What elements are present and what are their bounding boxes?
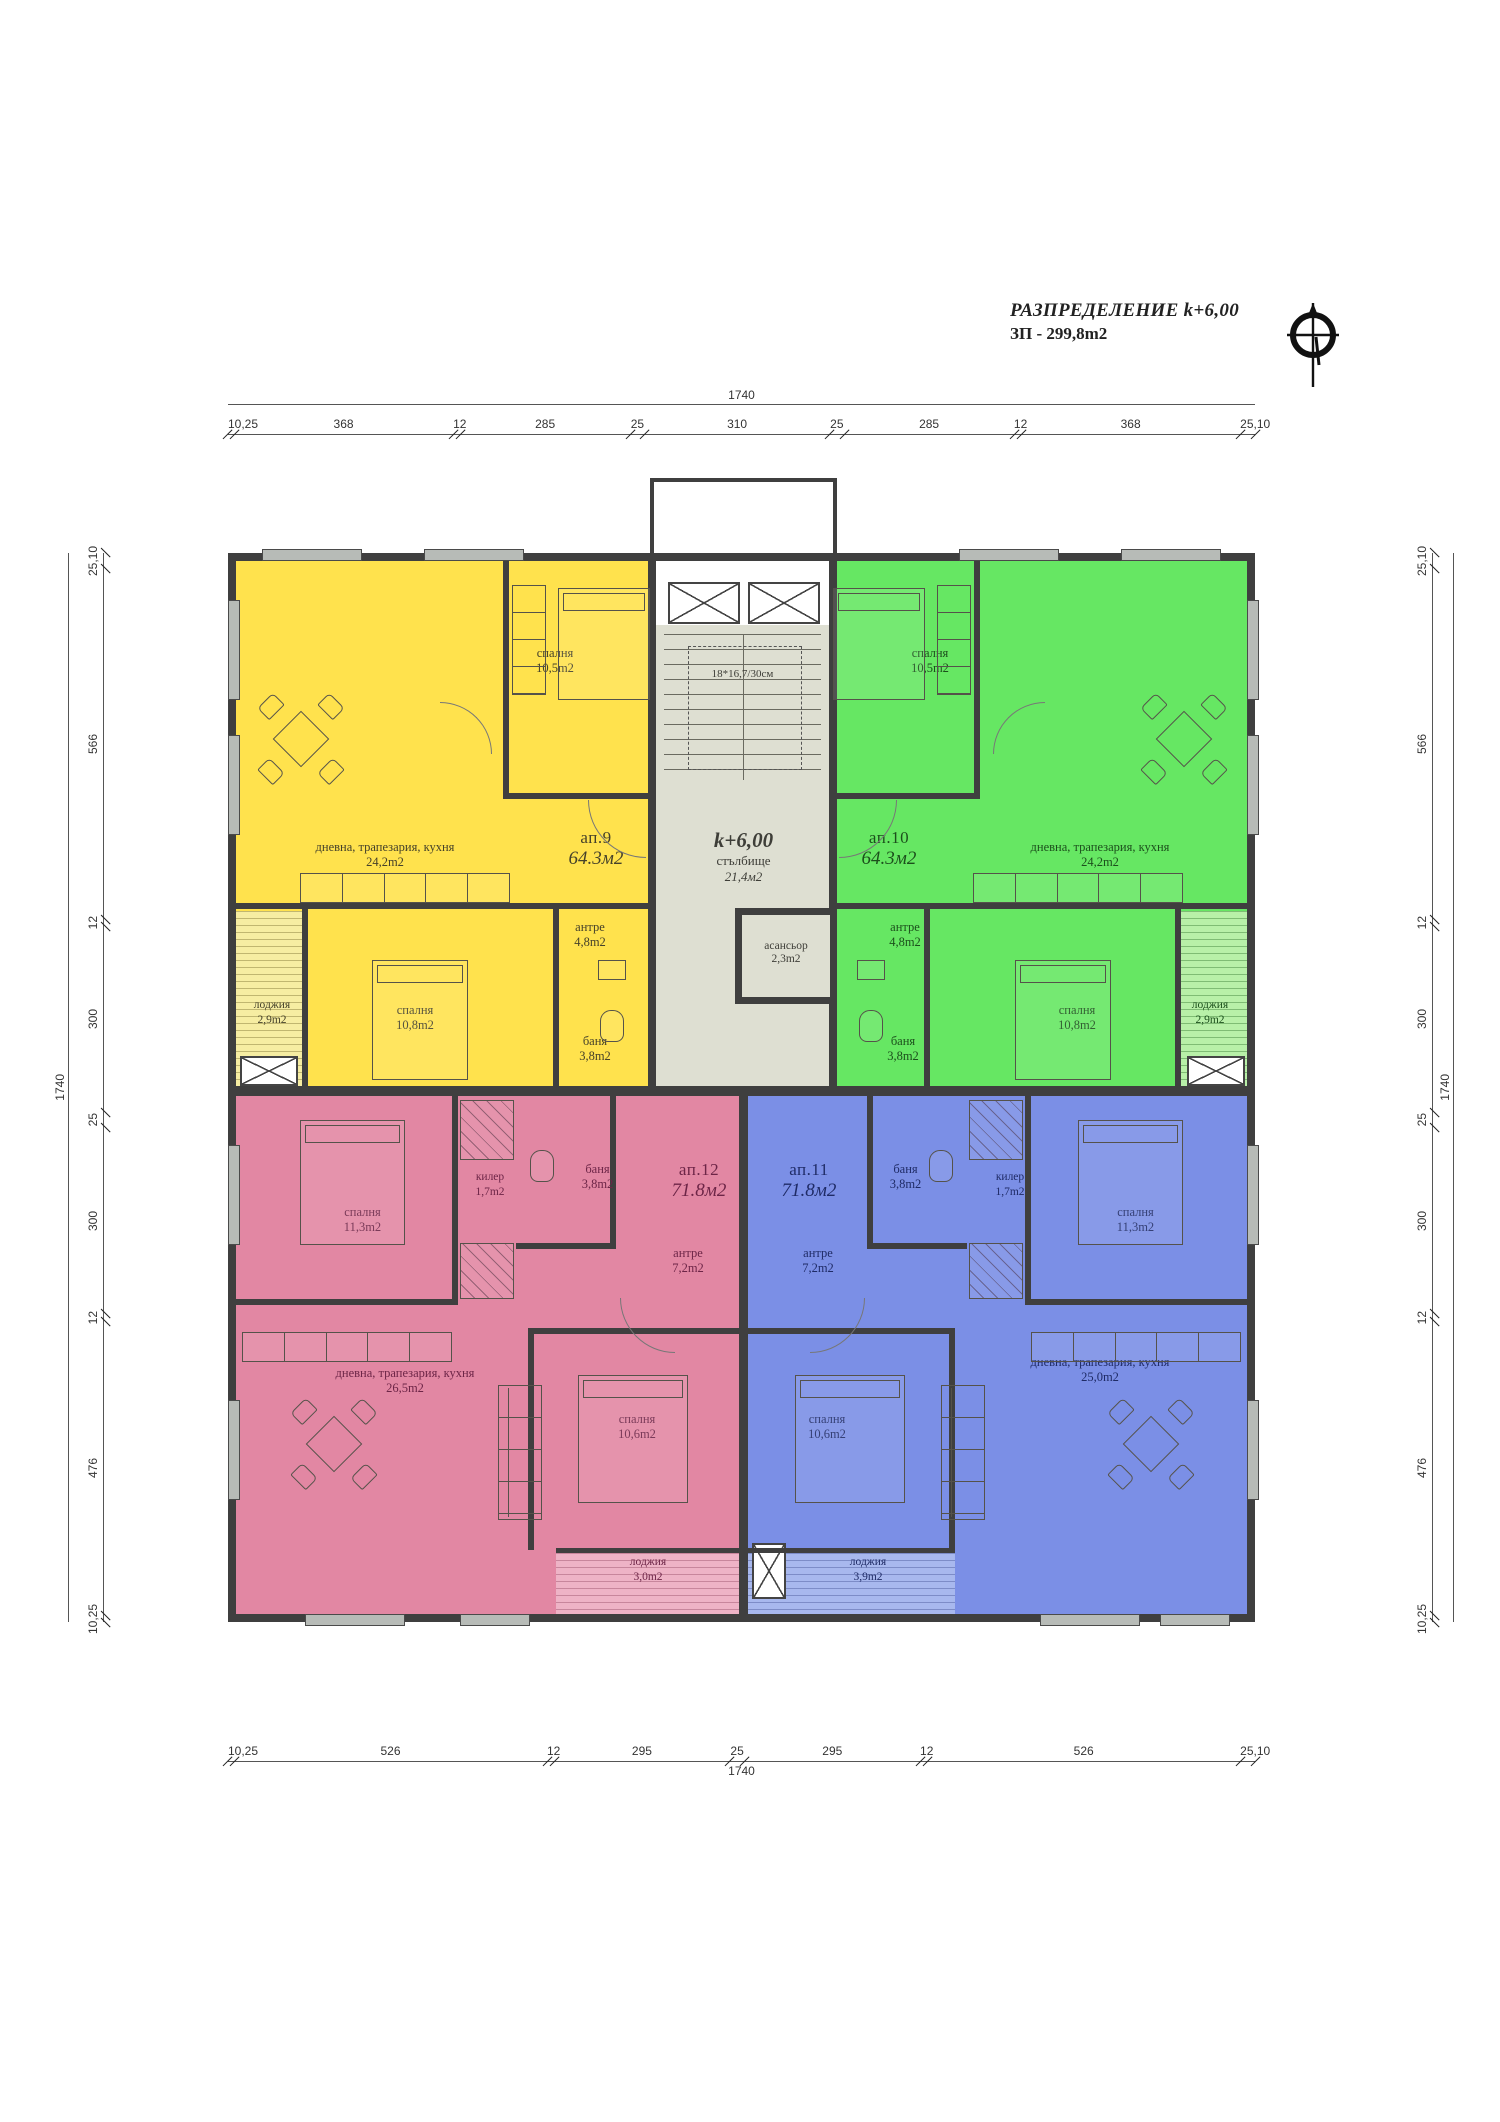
dimension-line-top: 1740 10,25 368 12 285 25 310 25 285 12 3…: [228, 388, 1255, 435]
closet-shelves: [969, 1100, 1023, 1160]
dim-segment: 566: [86, 569, 103, 920]
sofa: [498, 1385, 542, 1520]
window: [460, 1614, 530, 1626]
room-label: лоджия3,9m2: [818, 1555, 918, 1585]
wall: [503, 793, 654, 799]
room-label: баня3,8m2: [550, 1034, 640, 1064]
wall: [503, 561, 509, 799]
bed: [578, 1375, 688, 1503]
dim-segment: 526: [234, 1744, 547, 1761]
elevator-label: асансьор2,3m2: [735, 940, 837, 966]
window: [1040, 1614, 1140, 1626]
dim-segment: 25: [829, 417, 844, 434]
kitchen-counter: [300, 873, 510, 903]
sofa: [941, 1385, 985, 1520]
wall: [1025, 1096, 1031, 1305]
kitchen-counter: [973, 873, 1183, 903]
kitchen-counter: [242, 1332, 452, 1362]
window: [1121, 549, 1221, 561]
window: [1247, 735, 1259, 835]
dim-segment: 368: [1021, 417, 1240, 434]
apartment-12-label: ап.1271.8м2: [638, 1160, 760, 1202]
wall: [974, 561, 980, 799]
room-label: килер1,7m2: [965, 1170, 1055, 1200]
window: [305, 1614, 405, 1626]
closet-shelves: [460, 1243, 514, 1299]
bed: [372, 960, 468, 1080]
dim-segment: 300: [1415, 1128, 1432, 1314]
window: [424, 549, 524, 561]
dim-segment: 12: [1415, 1314, 1432, 1321]
wall: [1025, 1299, 1247, 1305]
room-label: антре4,8m2: [855, 920, 955, 950]
dim-segment: 476: [86, 1321, 103, 1616]
dim-segment: 300: [86, 926, 103, 1112]
dim-segment: 12: [1415, 919, 1432, 926]
dim-segment: 12: [86, 1314, 103, 1321]
dim-total: 1740: [728, 1764, 755, 1778]
dim-segment: 566: [1415, 569, 1432, 920]
dim-segment: 526: [927, 1744, 1240, 1761]
dim-total: 1740: [1438, 1074, 1452, 1101]
dim-segment: 310: [645, 417, 830, 434]
dim-segment: 10,25: [1415, 1616, 1432, 1622]
window: [1247, 600, 1259, 700]
bed: [300, 1120, 405, 1245]
dim-total: 1740: [728, 388, 755, 402]
bed: [833, 588, 925, 700]
room-label: лоджия2,9m2: [1170, 998, 1250, 1028]
bed: [1015, 960, 1111, 1080]
dim-segment: 300: [86, 1128, 103, 1314]
dim-segment: 25: [630, 417, 645, 434]
dim-segment: 285: [844, 417, 1014, 434]
closet-shelves: [460, 1100, 514, 1160]
dim-segment: 12: [1014, 417, 1021, 434]
north-arrow-icon: [1275, 295, 1350, 390]
sink: [598, 960, 626, 980]
room-label: дневна, трапезария, кухня24,2m2: [270, 840, 500, 870]
wall: [236, 903, 654, 909]
wall: [452, 1096, 458, 1305]
vent-shaft-icon: [668, 582, 740, 624]
dimension-line-right: 25,10 566 12 300 25 300 12 476 10,25 174…: [1398, 553, 1454, 1622]
toilet: [600, 1010, 624, 1042]
dimension-line-bottom: 10,25 526 12 295 25 295 12 526 25,10 174…: [228, 1744, 1255, 1780]
sink: [857, 960, 885, 980]
vent-shaft-icon: [1187, 1056, 1245, 1086]
wall: [829, 903, 1247, 909]
dim-segment: 295: [554, 1744, 730, 1761]
room-label: дневна, трапезария, кухня26,5m2: [290, 1366, 520, 1396]
dim-segment: 12: [453, 417, 460, 434]
window: [228, 1400, 240, 1500]
dim-segment: 12: [547, 1744, 554, 1761]
window: [1247, 1400, 1259, 1500]
dining-table: [262, 700, 338, 776]
window: [1247, 1145, 1259, 1245]
toilet: [929, 1150, 953, 1182]
core-label: k+6,00 стълбище 21,4м2: [664, 828, 823, 885]
wall: [829, 793, 980, 799]
dim-segment: 25: [1415, 1112, 1432, 1128]
bed: [558, 588, 650, 700]
stair-shaft-protrusion: [650, 478, 837, 564]
kitchen-counter: [1031, 1332, 1241, 1362]
window: [262, 549, 362, 561]
room-label: баня3,8m2: [550, 1162, 645, 1192]
dim-segment: 25,10: [1240, 1744, 1255, 1761]
toilet: [859, 1010, 883, 1042]
dim-segment: 295: [745, 1744, 921, 1761]
bed: [1078, 1120, 1183, 1245]
window: [228, 1145, 240, 1245]
stair-opening-dashed: [688, 646, 802, 770]
dim-segment: 10,25: [86, 1616, 103, 1622]
dining-table: [1112, 1405, 1188, 1481]
wall: [236, 1299, 458, 1305]
wall: [236, 1086, 1247, 1096]
dim-segment: 300: [1415, 926, 1432, 1112]
vent-shaft-icon: [748, 582, 820, 624]
dim-segment: 25: [730, 1744, 745, 1761]
floor-plan-sheet: РАЗПРЕДЕЛЕНИЕ k+6,00 ЗП - 299,8m2 1740 1…: [0, 0, 1500, 2122]
room-label: антре4,8m2: [540, 920, 640, 950]
wardrobe: [937, 585, 971, 695]
room-label: антре7,2m2: [638, 1246, 738, 1276]
wall: [556, 1548, 739, 1553]
bed: [795, 1375, 905, 1503]
wardrobe: [512, 585, 546, 695]
dim-segment: 285: [460, 417, 630, 434]
room-label: антре7,2m2: [768, 1246, 868, 1276]
dimension-line-left: 1740 25,10 566 12 300 25 300 12 476 10,2…: [48, 553, 104, 1622]
toilet: [530, 1150, 554, 1182]
window: [228, 735, 240, 835]
room-label: дневна, трапезария, кухня24,2m2: [985, 840, 1215, 870]
dining-table: [1145, 700, 1221, 776]
window: [228, 600, 240, 700]
apartment-11-label: ап.1171.8м2: [748, 1160, 870, 1202]
wall: [748, 1548, 955, 1553]
stair-steps-label: 18*16,7/30см: [660, 668, 825, 680]
dim-segment: 25: [86, 1112, 103, 1128]
vent-shaft-icon: [240, 1056, 298, 1086]
room-label: килер1,7m2: [445, 1170, 535, 1200]
dim-segment: 25,10: [1415, 553, 1432, 569]
room-label: лоджия2,9m2: [232, 998, 312, 1028]
dim-total: 1740: [53, 1074, 67, 1101]
closet-shelves: [969, 1243, 1023, 1299]
window: [1160, 1614, 1230, 1626]
dim-segment: 25,10: [1240, 417, 1255, 434]
dim-segment: 25,10: [86, 553, 103, 569]
room-label: лоджия3,0m2: [598, 1555, 698, 1585]
dim-segment: 476: [1415, 1321, 1432, 1616]
dim-segment: 368: [234, 417, 453, 434]
wall: [867, 1243, 967, 1249]
dim-segment: 12: [920, 1744, 927, 1761]
window: [959, 549, 1059, 561]
wall: [516, 1243, 616, 1249]
dining-table: [295, 1405, 371, 1481]
dim-segment: 12: [86, 919, 103, 926]
